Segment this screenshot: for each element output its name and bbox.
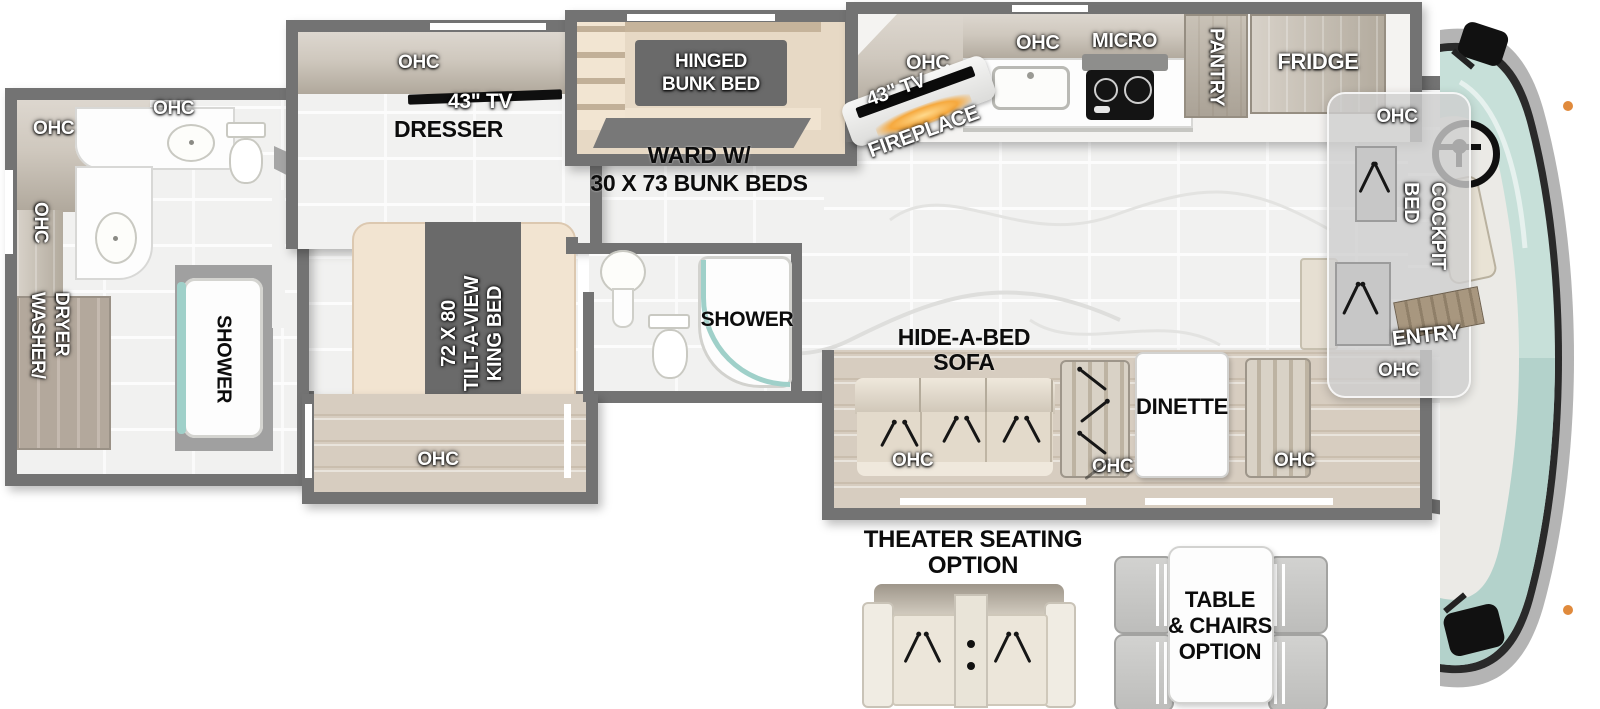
- ohc-label: OHC: [1016, 32, 1060, 55]
- toilet-tank: [226, 122, 266, 138]
- cockpit-seat: [1335, 262, 1391, 346]
- theater-console: [954, 594, 988, 708]
- toilet-tank: [648, 314, 690, 329]
- stitch-mark: [1362, 285, 1379, 315]
- faucet-dot: [113, 236, 118, 241]
- ohc-label: OHC: [33, 118, 74, 140]
- burner: [1124, 76, 1152, 104]
- toilet-bowl: [229, 138, 263, 184]
- ohc-label: OHC: [1369, 106, 1425, 128]
- slide-indicator: [430, 23, 546, 30]
- micro-label: MICRO: [1092, 30, 1157, 53]
- stitch-mark: [1359, 165, 1375, 193]
- slide-indicator: [564, 404, 571, 478]
- stitch-mark: [904, 635, 920, 663]
- ohc-label: OHC: [330, 448, 546, 472]
- ohc-label: OHC: [892, 450, 933, 472]
- bedroom-slide: OHC 43" TV DRESSER: [286, 20, 602, 249]
- slide-indicator: [1145, 498, 1333, 505]
- theater-seating: [860, 582, 1076, 706]
- rear-bath-slide: SHOWER OHC OHC OHC WASHER/ DRYER: [5, 88, 309, 486]
- sink-pedestal: [612, 288, 634, 328]
- mid-bath-wall-left: [583, 292, 594, 402]
- marker-light: [1563, 605, 1573, 615]
- faucet-dot: [189, 140, 194, 145]
- cupholder: [967, 662, 975, 670]
- slide-indicator: [627, 14, 775, 21]
- shower-glass: [177, 282, 186, 434]
- burner: [1094, 78, 1118, 102]
- tv-43-label: 43" TV: [448, 90, 512, 114]
- slide-indicator: [1012, 5, 1088, 12]
- rv-floorplan: SHOWER OHC OHC OHC WASHER/ DRYER OHC 43"…: [0, 0, 1600, 709]
- theater-armrest: [1044, 602, 1076, 708]
- fridge-label: FRIDGE: [1270, 50, 1366, 74]
- king-bed-label: 72 X 80 TILT-A-VIEW KING BED: [439, 275, 508, 390]
- ohc-label: OHC: [1378, 360, 1419, 382]
- table-chairs-label: TABLE & CHAIRS OPTION: [1156, 586, 1284, 666]
- slide-indicator: [5, 170, 13, 254]
- cupholder: [967, 640, 975, 648]
- sofa-front: [857, 462, 1053, 476]
- pantry-label: PANTRY: [1198, 22, 1234, 112]
- theater-seat: [982, 614, 1048, 706]
- theater-armrest: [862, 602, 894, 708]
- dresser-label: DRESSER: [394, 116, 503, 143]
- mid-bath-wall-stub: [566, 237, 578, 254]
- stitch-mark: [926, 635, 942, 663]
- slide-indicator: [305, 404, 312, 478]
- burner-control: [1094, 106, 1110, 113]
- theater-seat: [892, 614, 958, 706]
- cockpit-bed-overlay: OHC COCKPIT BED: [1327, 92, 1471, 398]
- hinged-bunk-bed: HINGED BUNK BED: [635, 40, 787, 106]
- toilet-bowl: [652, 329, 688, 379]
- ohc-label: OHC: [153, 98, 194, 120]
- shower-label: SHOWER: [700, 308, 794, 332]
- ohc-label: OHC: [1274, 450, 1315, 472]
- stitch-mark: [1342, 285, 1359, 315]
- marker-light: [1563, 101, 1573, 111]
- washer-dryer-label: WASHER/ DRYER: [25, 292, 73, 448]
- ohc-label: OHC: [398, 52, 439, 74]
- theater-option-label: THEATER SEATING OPTION: [863, 527, 1083, 579]
- cooktop: [1086, 70, 1154, 120]
- slide-indicator: [900, 498, 1086, 505]
- shower-label: SHOWER: [209, 286, 237, 432]
- stitch-mark: [994, 635, 1010, 663]
- stitch-mark: [1016, 635, 1032, 663]
- wall-bottom-mid: [568, 391, 824, 403]
- hide-a-bed-label: HIDE-A-BED SOFA: [878, 324, 1050, 376]
- faucet-dot: [1027, 72, 1034, 79]
- microwave: [1082, 54, 1168, 71]
- ward-label: WARD W/ 30 X 73 BUNK BEDS: [568, 140, 830, 198]
- mid-bath-wall-top: [566, 243, 802, 254]
- dinette-label: DINETTE: [1104, 394, 1260, 420]
- bunk-mattress-trim: [625, 22, 821, 32]
- sofa-back: [855, 378, 1055, 414]
- bunk-pillows: [577, 22, 625, 130]
- door-opening: [272, 190, 285, 328]
